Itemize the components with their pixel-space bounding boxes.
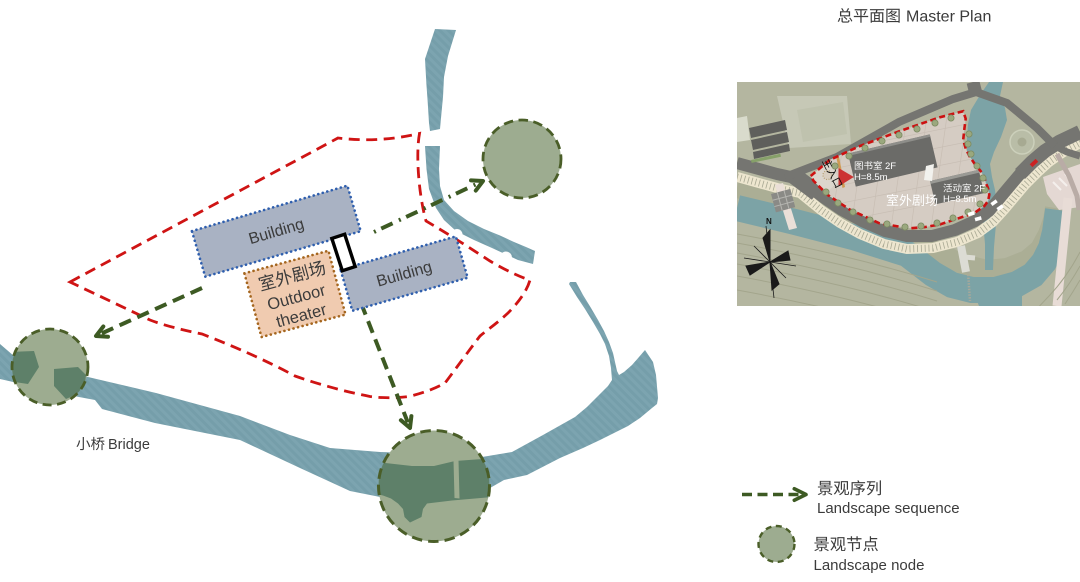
svg-text:Landscape node: Landscape node [814,557,925,574]
svg-text:H=8.5m: H=8.5m [854,172,888,183]
svg-text:2F: 2F [974,184,985,195]
svg-text:Landscape sequence: Landscape sequence [817,500,960,517]
svg-text:Bridge: Bridge [108,437,150,453]
svg-text:Master Plan: Master Plan [906,9,991,26]
svg-text:H=8.5m: H=8.5m [943,194,977,205]
svg-text:N: N [766,217,772,226]
svg-text:2F: 2F [885,161,896,172]
